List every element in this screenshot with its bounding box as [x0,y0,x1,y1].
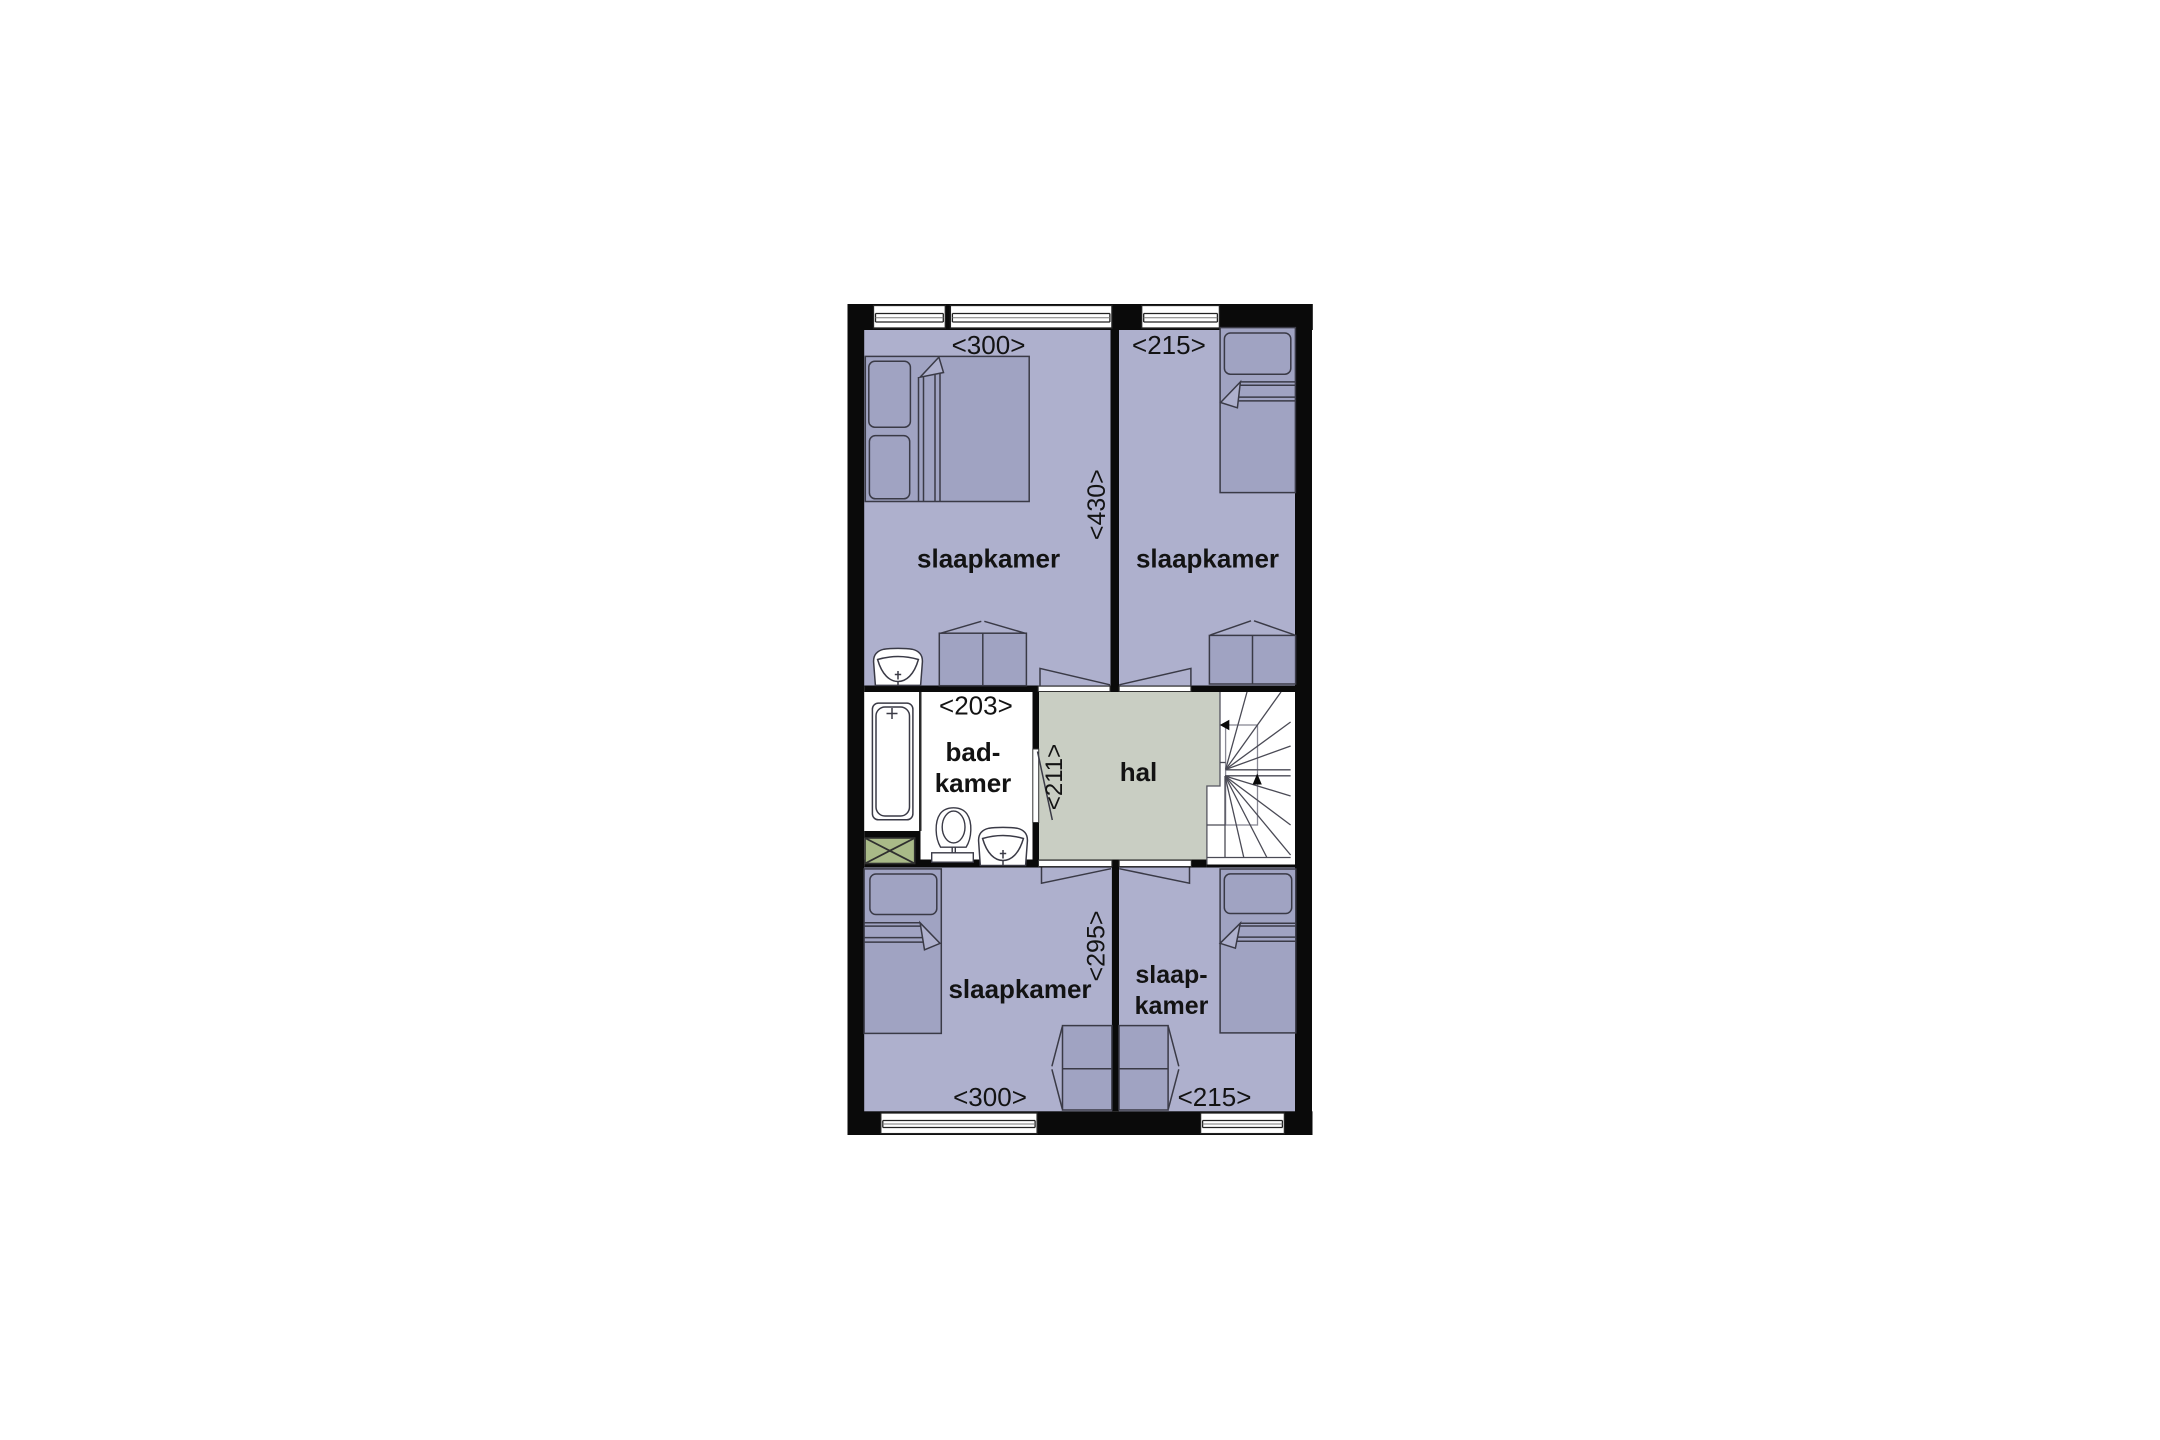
svg-text:<430>: <430> [1083,469,1111,540]
svg-text:<300>: <300> [953,1082,1027,1112]
svg-text:hal: hal [1120,757,1158,787]
svg-text:<215>: <215> [1132,330,1206,360]
svg-text:<203>: <203> [939,690,1013,720]
svg-text:kamer: kamer [1135,992,1209,1020]
svg-text:slaap-: slaap- [1135,961,1207,989]
svg-text:slaapkamer: slaapkamer [917,544,1060,574]
svg-text:slaapkamer: slaapkamer [1136,544,1279,574]
svg-text:bad-: bad- [946,737,1001,767]
svg-text:kamer: kamer [935,768,1012,798]
svg-text:<295>: <295> [1083,911,1111,982]
svg-text:<215>: <215> [1178,1082,1252,1112]
svg-text:slaapkamer: slaapkamer [948,974,1091,1004]
svg-text:<300>: <300> [952,330,1026,360]
svg-text:<211>: <211> [1041,744,1068,810]
